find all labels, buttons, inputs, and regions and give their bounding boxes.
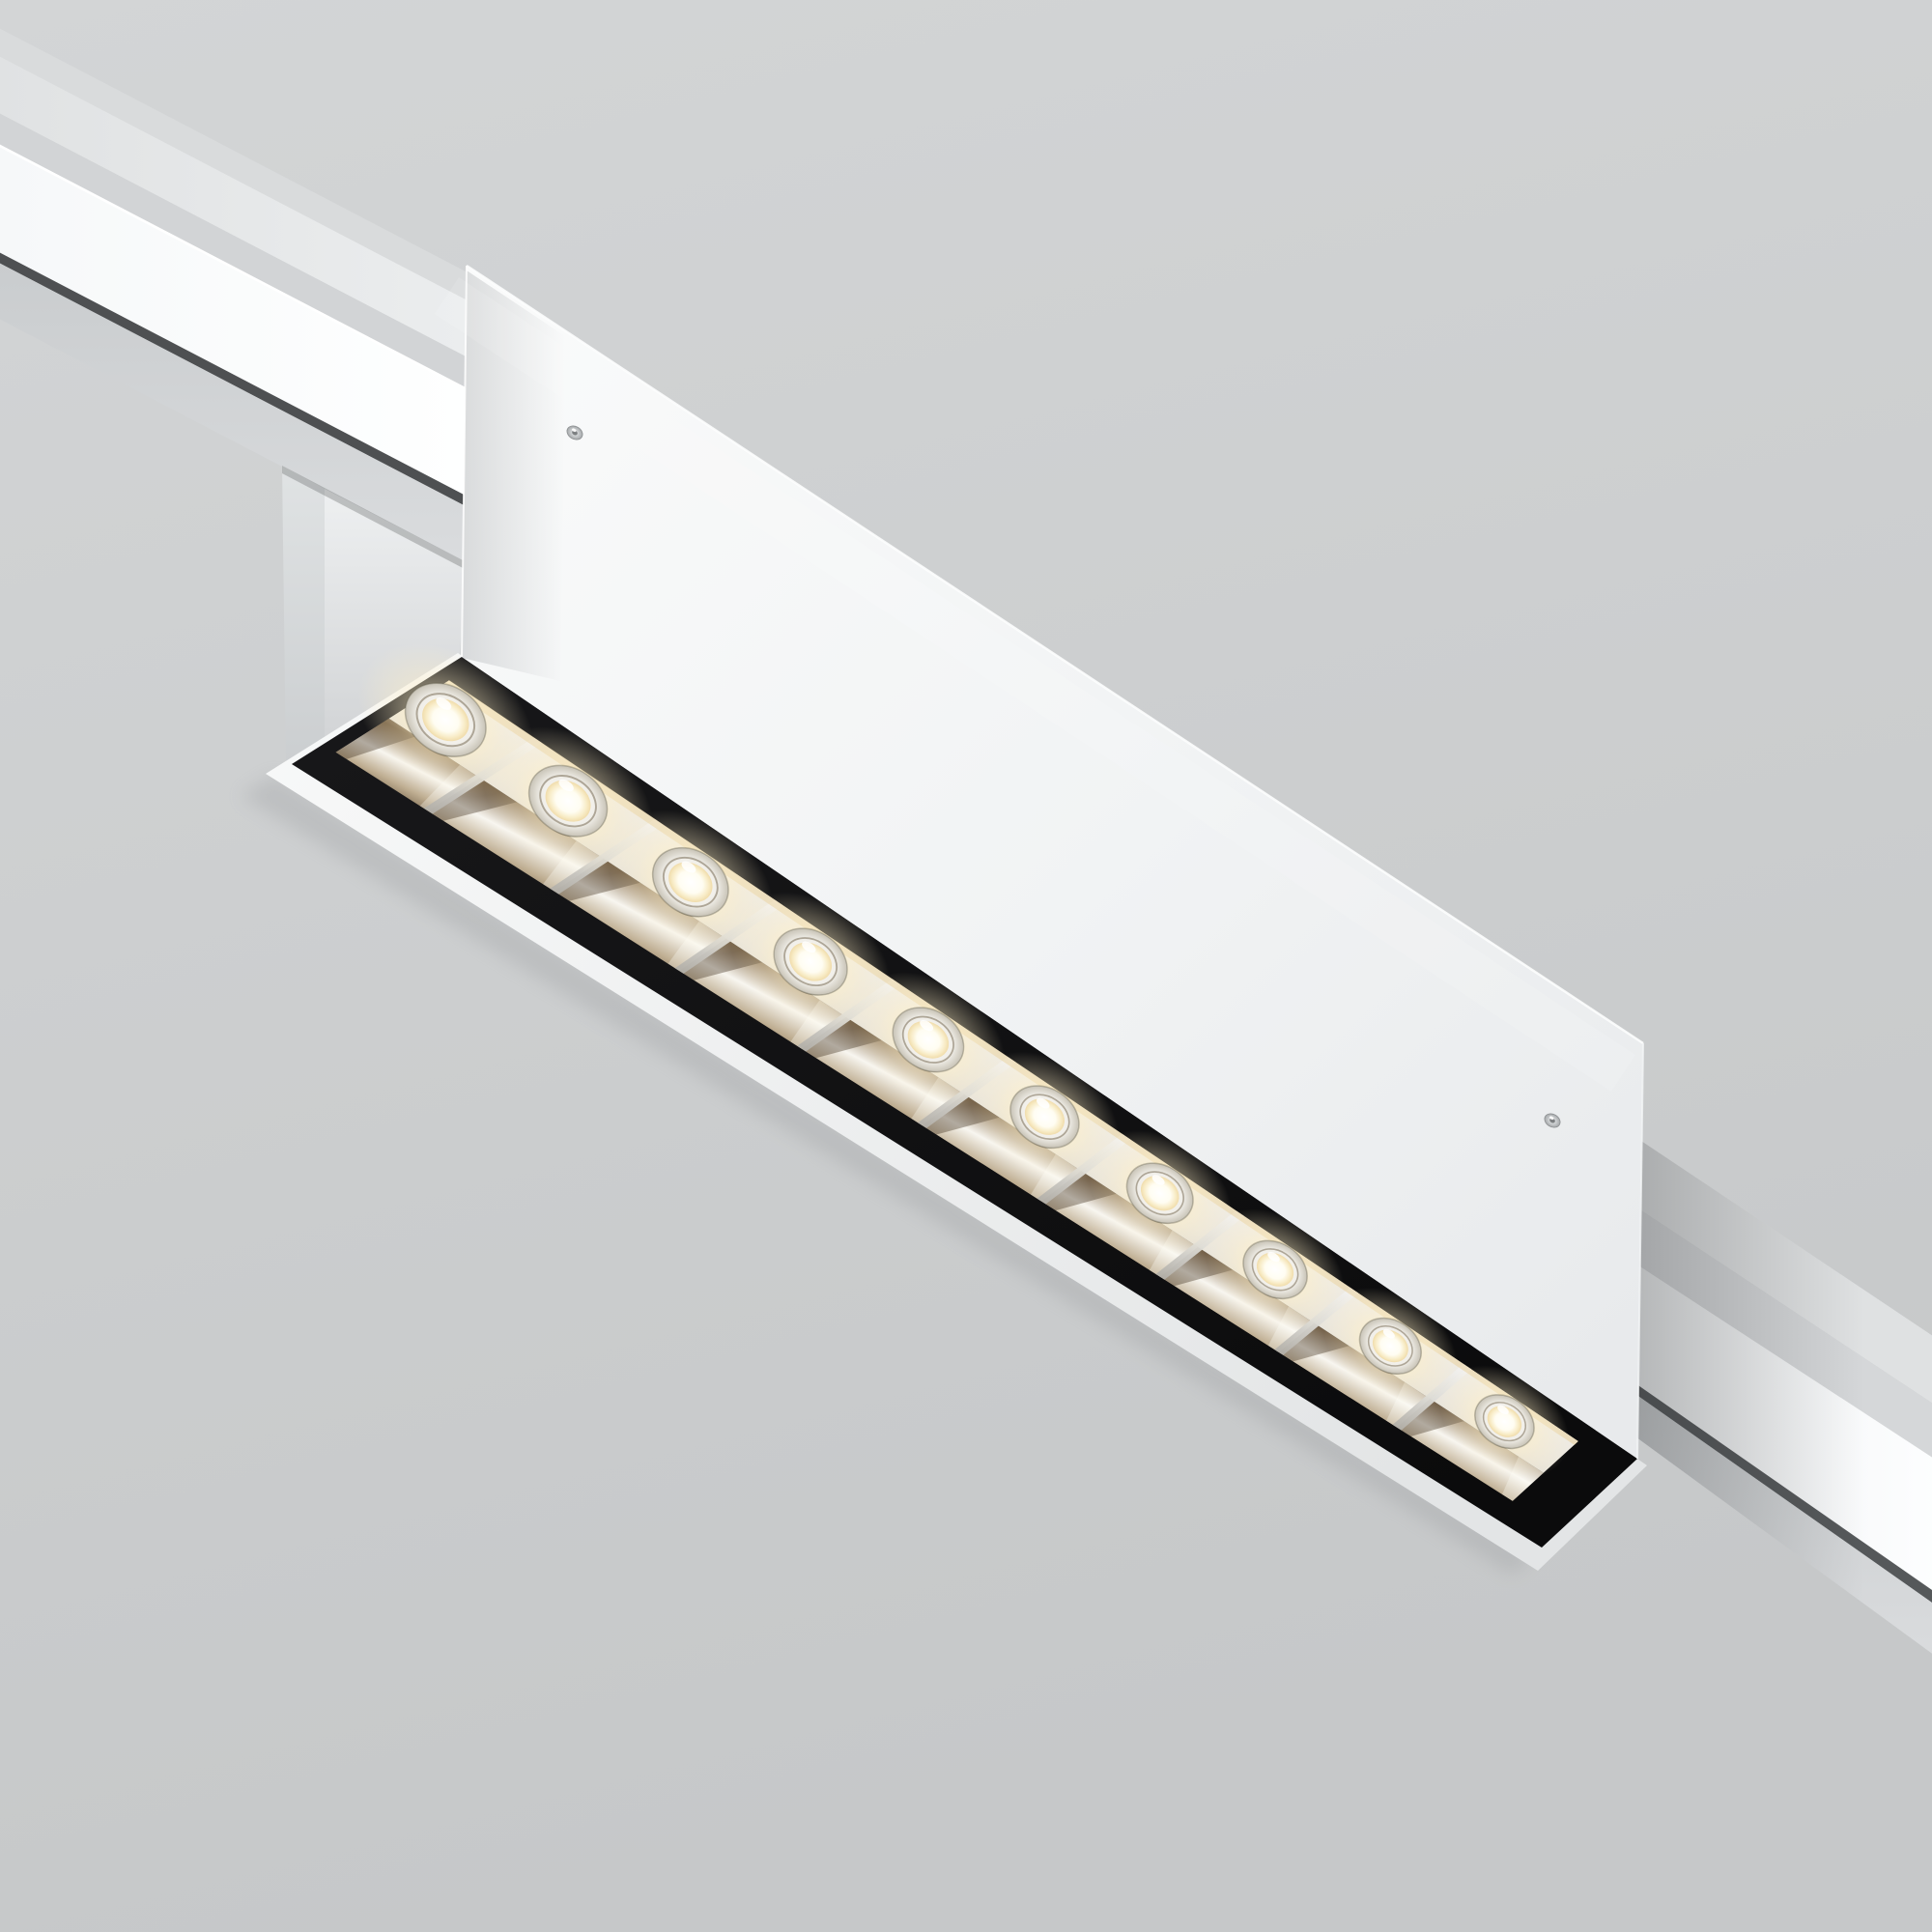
track-light-scene <box>0 0 1932 1932</box>
product-render <box>0 0 1932 1932</box>
stem-side-face <box>282 466 325 764</box>
